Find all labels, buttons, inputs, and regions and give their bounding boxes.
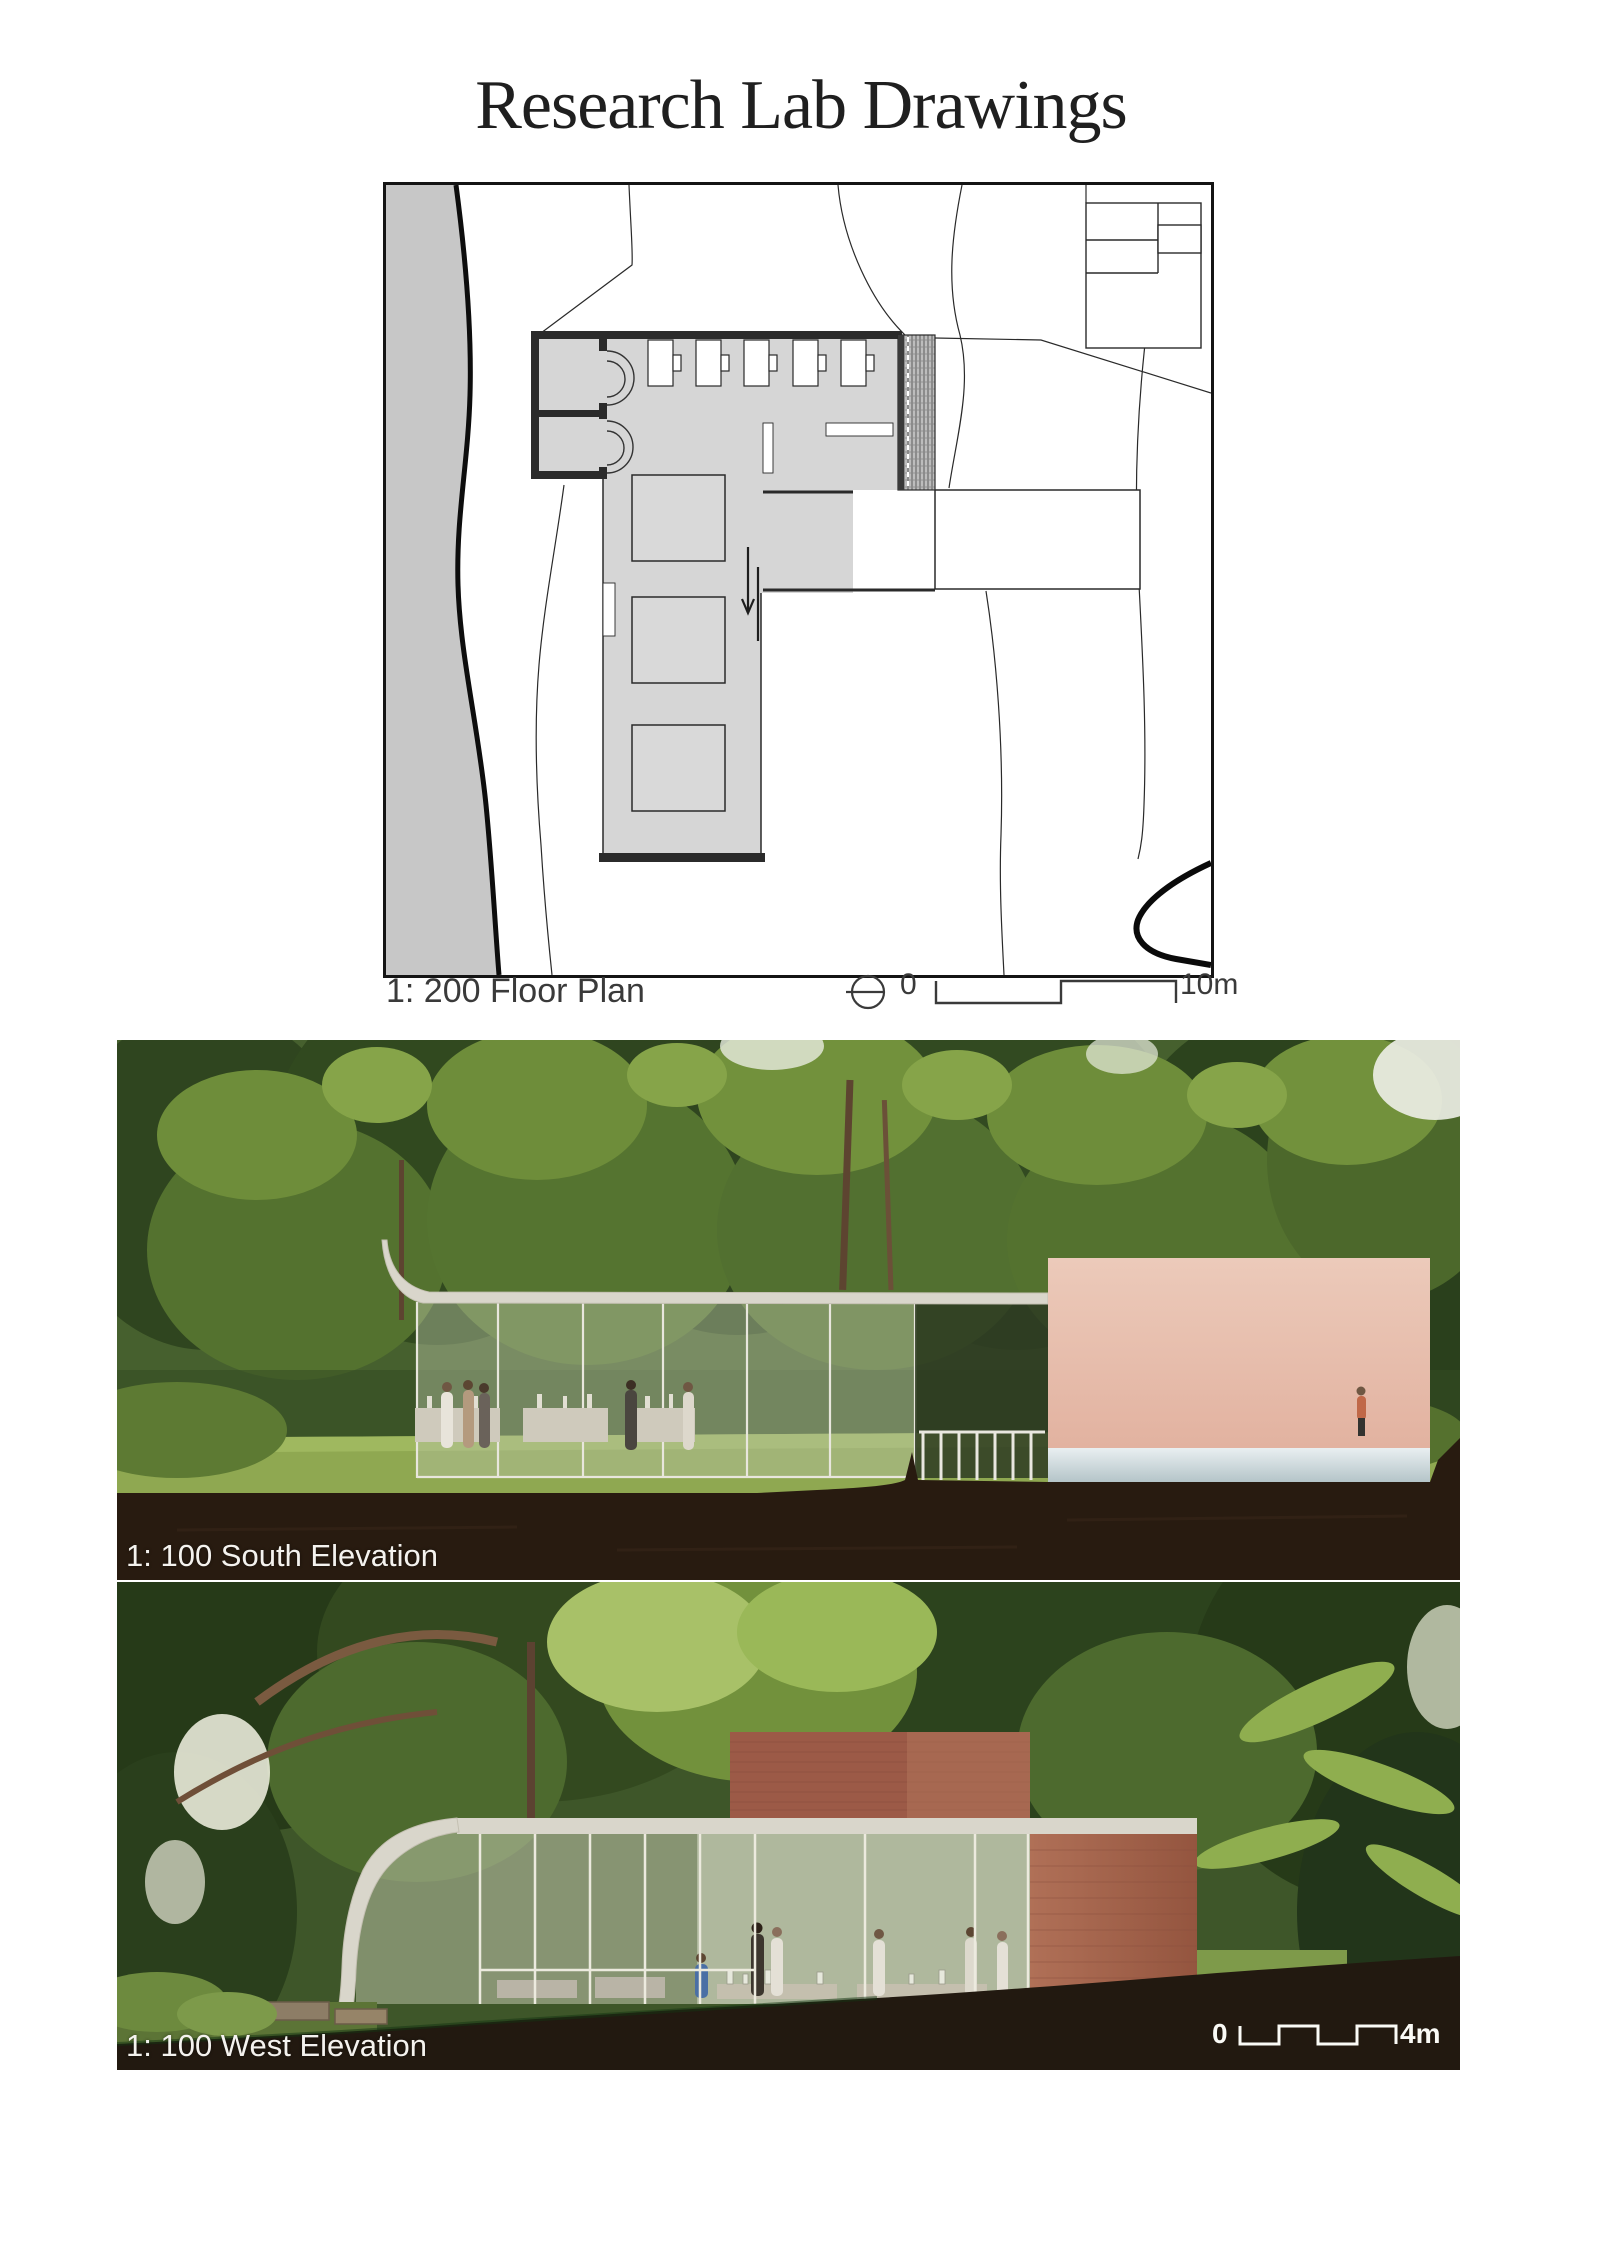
west-scale-zero: 0 <box>1212 2018 1228 2050</box>
south-elevation-caption: 1: 100 South Elevation <box>126 1538 438 1574</box>
site-steps <box>1086 203 1201 348</box>
roof-band <box>457 1818 1197 1834</box>
lab-building-plan <box>531 331 1140 862</box>
drawing-sheet: Research Lab Drawings <box>0 0 1602 2266</box>
floor-plan-caption: 1: 200 Floor Plan <box>386 972 645 1011</box>
west-elevation-render <box>117 1582 1460 2070</box>
plan-scale-bar <box>936 981 1176 1003</box>
west-elevation-caption: 1: 100 West Elevation <box>126 2028 427 2064</box>
plan-scale-zero: 0 <box>900 968 917 1002</box>
plan-scale-graphics <box>838 962 1198 1018</box>
floor-plan-panel <box>383 182 1214 978</box>
floor-plan-drawing <box>386 185 1211 975</box>
south-elevation-render <box>117 1040 1460 1580</box>
brick-box-south <box>1048 1258 1430 1496</box>
river-edge-south <box>1137 863 1211 965</box>
square-rooms <box>632 475 725 811</box>
west-elevation-illustration <box>117 1582 1460 2070</box>
compass-icon <box>846 976 884 1008</box>
brick-wall-plan <box>898 335 935 490</box>
river-band <box>386 185 499 975</box>
plan-scale-end: 10m <box>1180 968 1238 1002</box>
sky-gap <box>174 1714 270 1830</box>
page-title: Research Lab Drawings <box>0 66 1602 146</box>
brick-clerestory <box>730 1732 1030 1818</box>
south-elevation-illustration <box>117 1040 1460 1580</box>
west-scale-end: 4m <box>1400 2018 1440 2050</box>
terrace <box>935 490 1140 589</box>
